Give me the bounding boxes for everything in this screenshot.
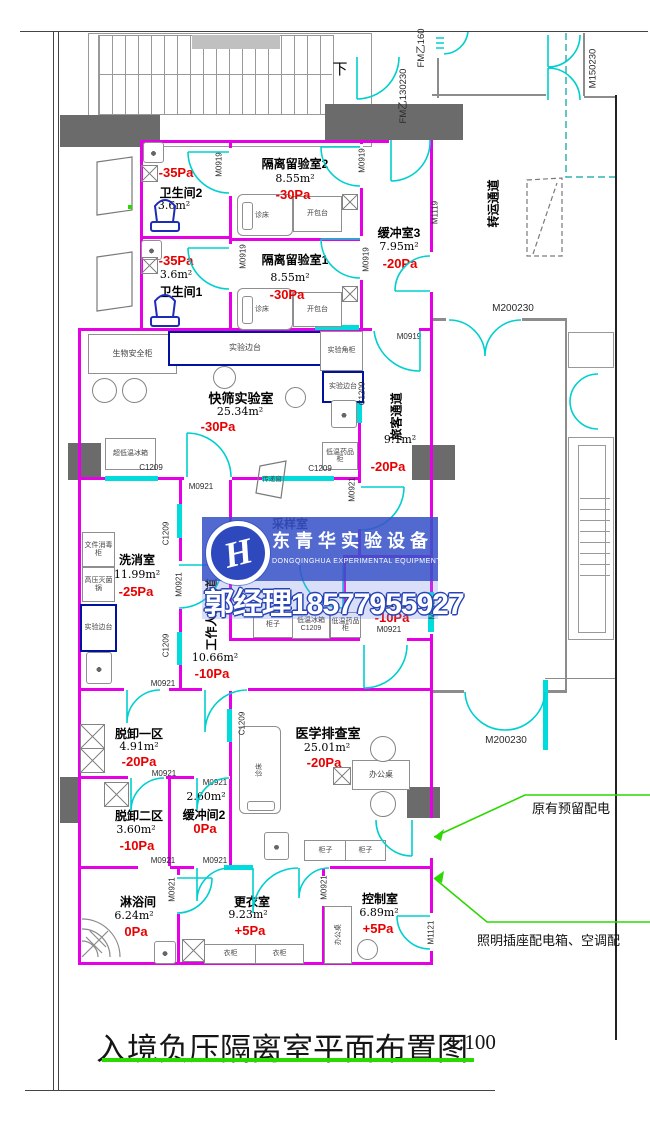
room-name-geli2: 隔离留验室2 <box>250 155 340 172</box>
door-gap <box>430 252 433 292</box>
corridor-wall <box>437 58 439 98</box>
pass-window-label: 传递窗 <box>258 473 286 483</box>
door-gap <box>177 875 180 914</box>
sink <box>331 400 357 428</box>
door-code-fm130230: FM乙130230 <box>395 56 409 136</box>
shower-fan-icon <box>82 919 120 957</box>
door-code-m0921: M0921 <box>142 856 184 865</box>
bed-label: 诊床 <box>255 210 269 220</box>
room-pa-wsj1: -35Pa <box>152 253 200 268</box>
corridor-wall <box>433 318 446 321</box>
wall <box>229 238 363 241</box>
door-code-fm160: FM乙160 <box>413 20 427 76</box>
window <box>177 632 182 665</box>
office-desk: 办公桌 <box>324 906 352 964</box>
wall-block <box>407 787 440 818</box>
drawing-title: 入境负压隔离室平面布置图 <box>96 1024 468 1069</box>
window-code-c1209: C1209 <box>358 374 367 414</box>
room-name-tx2: 脱卸二区 <box>112 807 166 824</box>
stair-landing <box>192 35 280 49</box>
room-pa-ly: 0Pa <box>117 924 155 939</box>
wall-block <box>68 443 101 480</box>
corner-cabinet: 实验角柜 <box>320 331 363 371</box>
door-code-m0921: M0921 <box>175 565 184 605</box>
wall-block <box>325 104 463 140</box>
stair-down-label: 下 <box>330 58 350 79</box>
room-pa-hc2: 0Pa <box>184 821 226 836</box>
room-pa-gzry: -10Pa <box>187 666 237 681</box>
door-code-m0919: M0919 <box>215 145 224 185</box>
stool <box>357 939 378 960</box>
room-area-tx2: 3.60m² <box>113 823 159 836</box>
door-code-m0921: M0921 <box>320 868 329 908</box>
room-name-hc3: 缓冲室3 <box>368 224 430 241</box>
window <box>224 865 253 870</box>
lab-bench: 实验边台 <box>168 331 322 366</box>
door-code-m0921: M0921 <box>348 470 357 510</box>
watermark-brand-en: DONGQINGHUA EXPERIMENTAL EQUIPMENT <box>272 558 438 565</box>
bed-label: 诊床 <box>255 304 269 314</box>
wardrobe: 衣柜 <box>255 944 304 964</box>
watermark-logo-icon: H <box>206 521 270 585</box>
room-area-geli2: 8.55m² <box>255 172 335 185</box>
door-gap <box>229 244 232 292</box>
sheet-border-bottom <box>25 1090 495 1091</box>
room-area-ly: 6.24m² <box>111 909 157 922</box>
building-outer-wall <box>615 95 617 1040</box>
annotation-reserved-power: 原有预留配电 <box>532 798 648 817</box>
sink <box>154 941 176 964</box>
window-code-c1209: C1209 <box>238 704 247 744</box>
room-area-wsj1: 3.6m² <box>152 268 200 281</box>
side-room <box>568 332 614 368</box>
cabinet: 柜子 <box>304 840 347 861</box>
corridor-wall <box>522 318 567 321</box>
stool <box>92 378 117 403</box>
door-gap <box>250 866 297 869</box>
shaft-box <box>80 724 105 749</box>
drawing-scale: 1:100 <box>448 1030 496 1055</box>
wardrobe: 衣柜 <box>204 944 257 964</box>
room-pa-wsj2: -35Pa <box>152 165 200 180</box>
room-area-lk: 9.1m² <box>378 433 422 446</box>
door-gap <box>360 638 407 641</box>
door-code-m0921: M0921 <box>179 482 223 491</box>
room-area-gy: 9.23m² <box>225 908 271 921</box>
window-code-c1209: C1209 <box>162 626 171 666</box>
door-gap <box>389 140 430 143</box>
room-pa-yx: -20Pa <box>298 755 350 770</box>
door-code-m0921: M0921 <box>194 856 236 865</box>
room-pa-xx: -25Pa <box>110 584 162 599</box>
door-code-m0921: M0921 <box>367 625 411 634</box>
corridor-wall <box>565 318 567 690</box>
sink <box>264 832 289 860</box>
corridor-door-leaf <box>543 680 548 750</box>
wall <box>140 236 232 239</box>
door-code-m1119: M1119 <box>431 193 440 233</box>
wall-block <box>412 445 455 480</box>
sink <box>143 142 164 163</box>
room-pa-gy: +5Pa <box>228 923 272 938</box>
annotation-lighting-power: 照明插座配电箱、空调配 <box>477 930 648 949</box>
title-underline <box>102 1058 474 1062</box>
wall-block <box>60 777 78 823</box>
door-gap <box>138 866 170 869</box>
watermark-logo-letter: H <box>219 529 256 577</box>
window-code-c1209: C1209 <box>299 464 341 473</box>
door-gap <box>229 148 232 196</box>
room-pa-lk: -20Pa <box>362 459 414 474</box>
bed-label: 诊床 <box>254 763 264 777</box>
room-area-geli1: 8.55m² <box>250 271 330 284</box>
door-code-m0921: M0921 <box>142 679 184 688</box>
room-name-wsj1: 卫生间1 <box>150 283 212 300</box>
stool <box>122 378 147 403</box>
room-area-kz: 6.89m² <box>356 906 402 919</box>
vent-box <box>342 286 358 302</box>
room-pa-kz: +5Pa <box>356 921 400 936</box>
corridor-wall <box>545 678 615 679</box>
door-gap <box>124 688 169 691</box>
room-name-xx: 洗消室 <box>113 551 161 568</box>
door-code-m150230: M150230 <box>588 41 599 97</box>
door-code-m1121: M1121 <box>427 913 436 953</box>
sheet-border-left-inner <box>58 31 59 1091</box>
window <box>227 709 232 742</box>
room-pa-tx2: -10Pa <box>112 838 162 853</box>
desk-label: 办公桌 <box>334 925 341 946</box>
stool <box>213 366 236 389</box>
room-pa-geli2: -30Pa <box>258 187 328 202</box>
door-code-m0919: M0919 <box>387 332 431 341</box>
window <box>177 504 182 538</box>
stair-rail <box>98 74 332 75</box>
door-code-m200230: M200230 <box>478 735 534 746</box>
room-pa-hc3: -20Pa <box>370 256 430 271</box>
cabinet: 柜子 <box>345 840 386 861</box>
door-code-m0921: M0921 <box>143 769 185 778</box>
room-name-geli1: 隔离留验室1 <box>250 251 340 268</box>
fridge-code: C1209 <box>301 625 322 632</box>
room-area-ks: 25.34m² <box>207 405 273 418</box>
door-gap <box>184 477 232 480</box>
document-disinfection-cabinet: 文件消毒柜 <box>82 532 115 567</box>
corridor-wall <box>583 33 585 96</box>
stool <box>285 387 306 408</box>
room-pa-tx1: -20Pa <box>114 754 164 769</box>
room-area-xx: 11.99m² <box>110 568 164 581</box>
corridor-wall <box>433 690 464 693</box>
vent-box <box>182 939 205 962</box>
room-name-yx: 医学排查室 <box>292 723 364 742</box>
door-gap <box>430 818 433 858</box>
door-gap <box>202 688 248 691</box>
room-pa-geli1: -30Pa <box>252 287 322 302</box>
room-area-hc2: 2.60m² <box>184 790 228 803</box>
window-code-c1209: C1209 <box>162 514 171 554</box>
side-stair-treads <box>580 498 610 584</box>
stool <box>370 736 396 762</box>
office-desk: 办公桌 <box>352 760 410 790</box>
door-code-m0921: M0921 <box>194 778 236 787</box>
room-name-ly: 淋浴间 <box>114 893 162 910</box>
door-gap <box>372 328 419 331</box>
window <box>105 476 158 481</box>
sheet-border-left-outer <box>53 31 54 1091</box>
biosafety-cabinet: 生物安全柜 <box>88 334 177 374</box>
corridor-wall <box>432 94 546 96</box>
door-code-m200230: M200230 <box>485 303 541 314</box>
window-code-c1209: C1209 <box>130 463 172 472</box>
room-area-gzry: 10.66m² <box>188 651 242 664</box>
room-area-hc3: 7.95m² <box>370 240 428 253</box>
room-name-kz: 控制室 <box>356 890 404 907</box>
stool <box>370 791 396 817</box>
sheet-border-top <box>20 31 648 32</box>
sink <box>86 652 112 684</box>
lab-bench: 实验边台 <box>80 604 117 652</box>
shaft-box <box>80 748 105 773</box>
shaft-box <box>104 782 129 807</box>
floor-plan-sheet: 下 <box>0 0 650 1124</box>
vent-box <box>342 194 358 210</box>
watermark-phone: 郭经理18577955927 <box>204 579 464 623</box>
corridor-wall <box>546 690 567 693</box>
room-area-yx: 25.01m² <box>301 741 353 754</box>
room-area-tx1: 4.91m² <box>116 740 162 753</box>
room-area-wsj2: 3.6m² <box>150 199 198 212</box>
door-code-m0921: M0921 <box>168 870 177 910</box>
door-code-m0919: M0919 <box>358 141 367 181</box>
room-pa-ks: -30Pa <box>190 419 246 434</box>
room-name-zy: 转运通道 <box>485 176 502 232</box>
watermark-brand: 东青华实验设备 <box>272 527 438 553</box>
door-code-m0919: M0919 <box>239 237 248 277</box>
